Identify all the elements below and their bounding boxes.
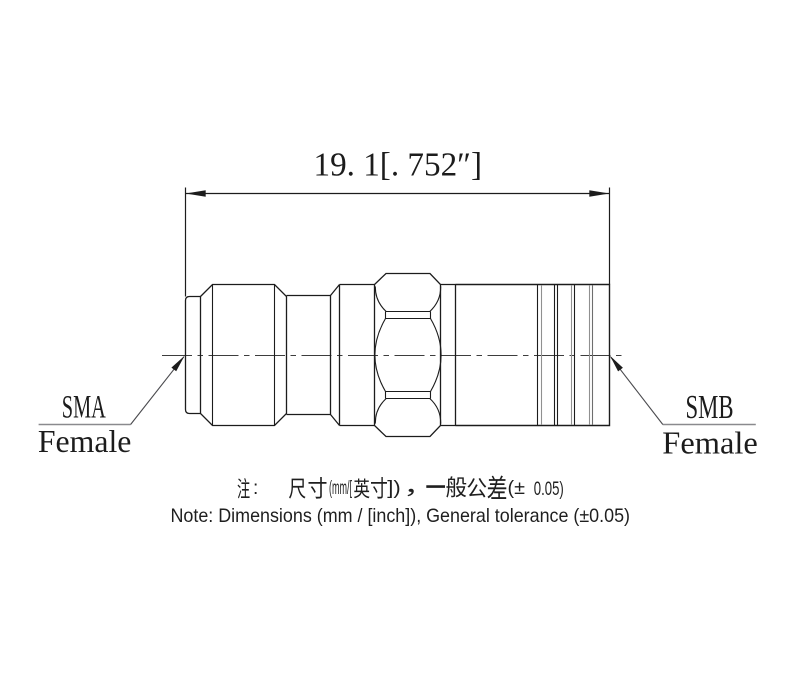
- svg-text:19. 1[. 752″]: 19. 1[. 752″]: [314, 147, 483, 184]
- svg-text::: :: [253, 478, 258, 499]
- svg-text:0.05): 0.05): [534, 478, 564, 500]
- svg-text:]): ]): [387, 478, 401, 499]
- svg-text:(±: (±: [508, 478, 526, 499]
- svg-text:Female: Female: [38, 423, 131, 459]
- svg-text:SMB: SMB: [686, 389, 734, 426]
- svg-text:SMA: SMA: [62, 389, 106, 425]
- svg-text:Female: Female: [662, 424, 758, 460]
- svg-text:Note: Dimensions (mm / [inch]): Note: Dimensions (mm / [inch]), General …: [171, 506, 631, 527]
- svg-text:(mm/[: (mm/[: [329, 478, 352, 499]
